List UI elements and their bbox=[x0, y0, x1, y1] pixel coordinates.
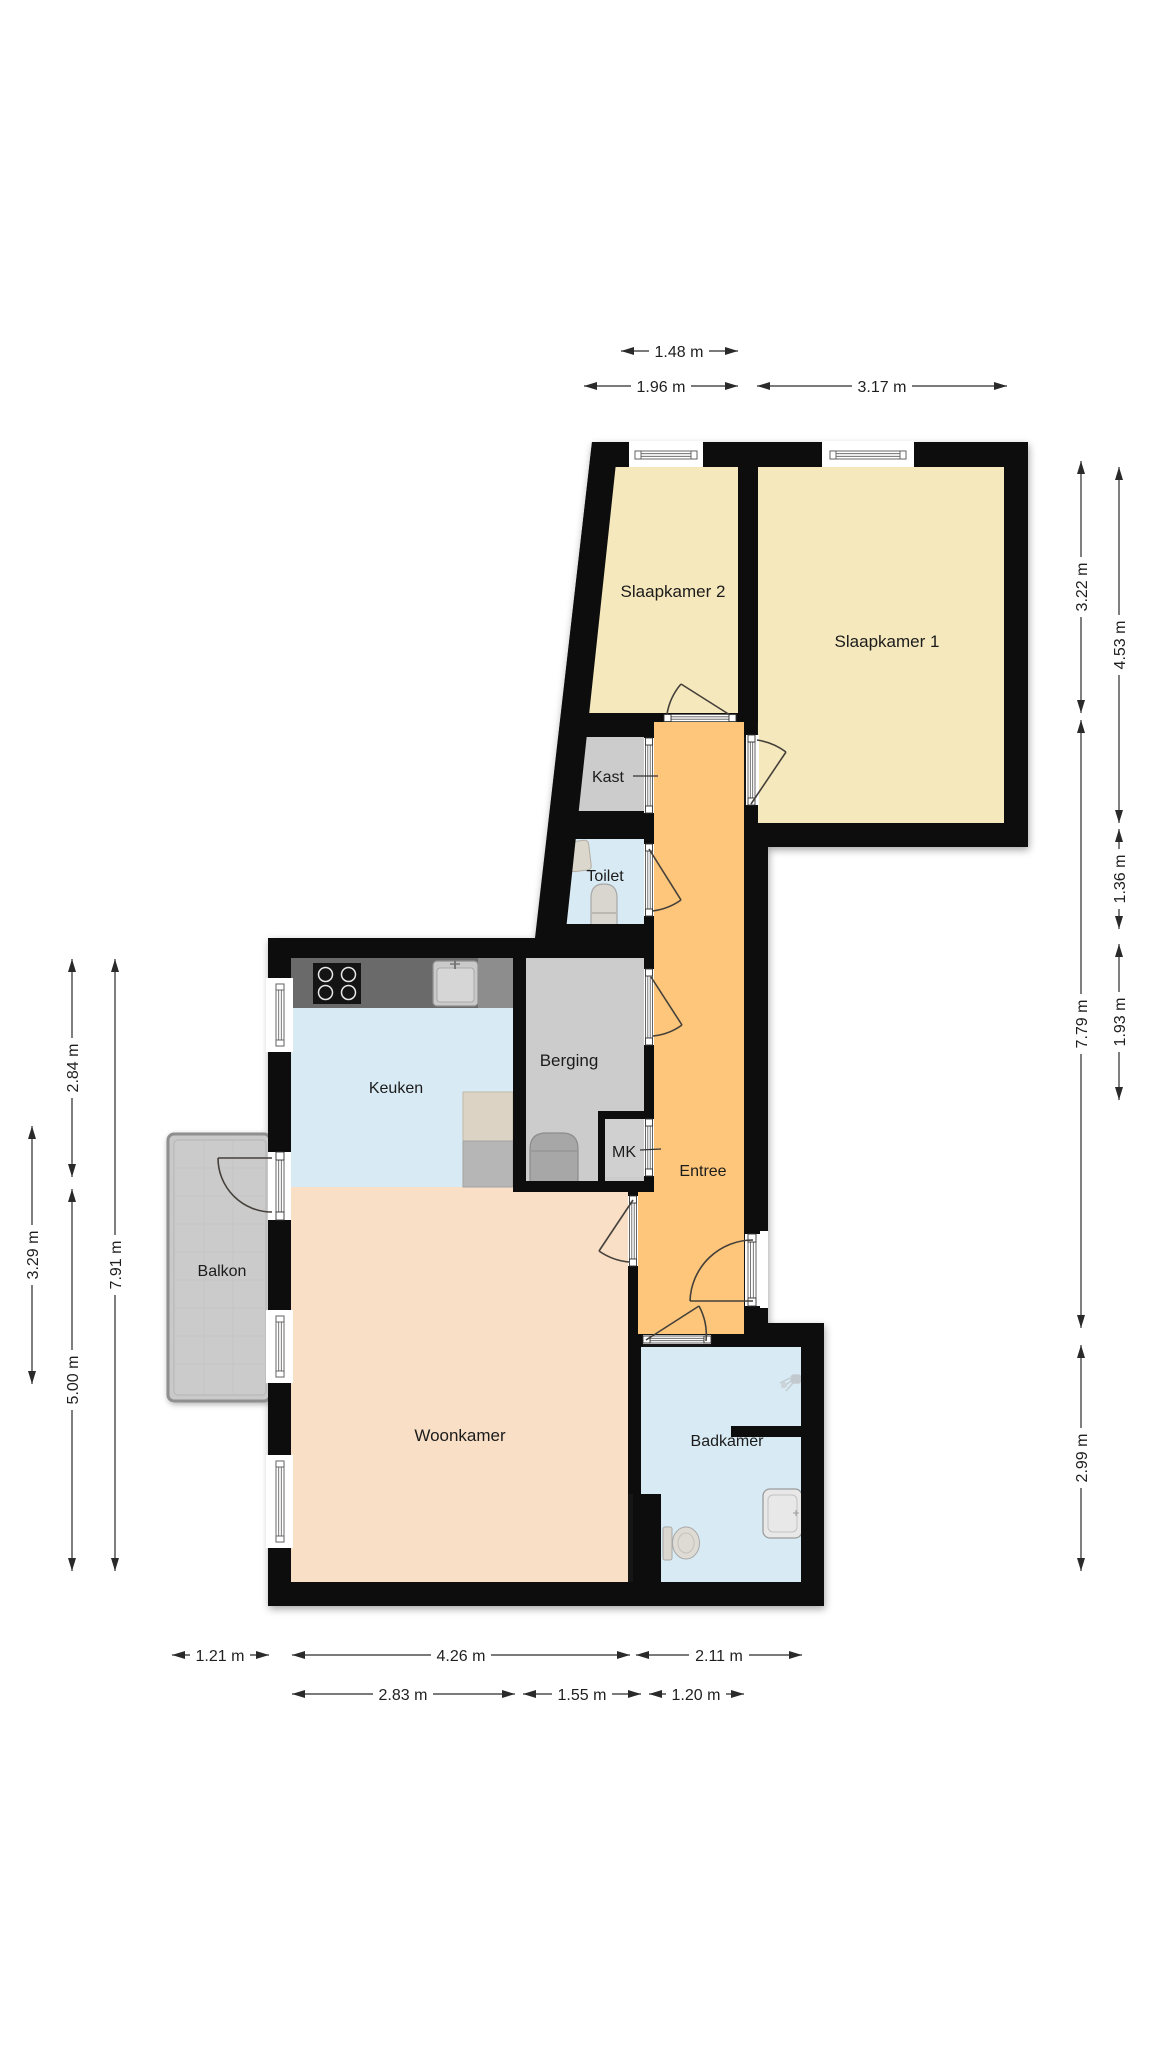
svg-text:5.00 m: 5.00 m bbox=[65, 1356, 82, 1405]
svg-text:3.29 m: 3.29 m bbox=[25, 1231, 42, 1280]
svg-text:Balkon: Balkon bbox=[198, 1263, 247, 1280]
svg-text:MK: MK bbox=[612, 1144, 636, 1161]
svg-text:2.83 m: 2.83 m bbox=[379, 1687, 428, 1704]
svg-text:Kast: Kast bbox=[592, 769, 625, 786]
svg-text:1.48 m: 1.48 m bbox=[655, 344, 704, 361]
svg-text:2.11 m: 2.11 m bbox=[695, 1648, 743, 1665]
svg-text:1.21 m: 1.21 m bbox=[196, 1648, 245, 1665]
svg-text:Woonkamer: Woonkamer bbox=[414, 1426, 506, 1445]
svg-text:Keuken: Keuken bbox=[369, 1080, 423, 1097]
svg-text:1.55 m: 1.55 m bbox=[558, 1687, 607, 1704]
svg-text:1.93 m: 1.93 m bbox=[1112, 998, 1129, 1047]
svg-text:4.26 m: 4.26 m bbox=[437, 1648, 486, 1665]
svg-text:3.22 m: 3.22 m bbox=[1074, 563, 1091, 612]
svg-text:3.17 m: 3.17 m bbox=[858, 379, 907, 396]
svg-text:Toilet: Toilet bbox=[586, 868, 624, 885]
svg-text:Badkamer: Badkamer bbox=[691, 1433, 765, 1450]
svg-text:1.20 m: 1.20 m bbox=[672, 1687, 721, 1704]
svg-text:2.84 m: 2.84 m bbox=[65, 1044, 82, 1093]
svg-text:1.96 m: 1.96 m bbox=[637, 379, 686, 396]
svg-text:Slaapkamer 1: Slaapkamer 1 bbox=[835, 632, 940, 651]
svg-text:Slaapkamer 2: Slaapkamer 2 bbox=[621, 582, 726, 601]
svg-text:2.99 m: 2.99 m bbox=[1074, 1434, 1091, 1483]
svg-text:Berging: Berging bbox=[540, 1051, 599, 1070]
svg-text:Entree: Entree bbox=[679, 1163, 726, 1180]
svg-text:1.36 m: 1.36 m bbox=[1112, 855, 1129, 904]
svg-text:7.79 m: 7.79 m bbox=[1074, 1000, 1091, 1049]
svg-text:4.53 m: 4.53 m bbox=[1112, 621, 1129, 670]
svg-text:7.91 m: 7.91 m bbox=[108, 1241, 125, 1290]
